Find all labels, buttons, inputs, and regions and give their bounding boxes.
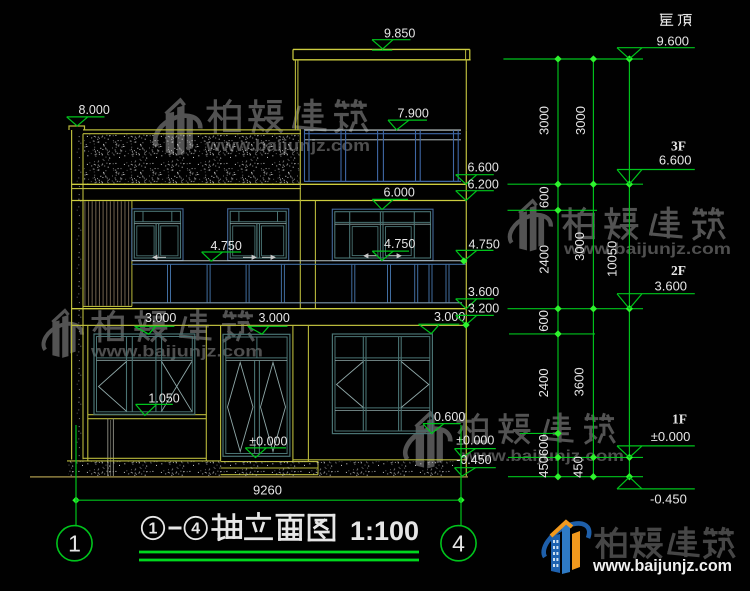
svg-text:4.750: 4.750	[211, 239, 242, 253]
svg-text:6.000: 6.000	[384, 186, 415, 200]
svg-text:4: 4	[191, 521, 200, 538]
svg-text:1:100: 1:100	[350, 516, 419, 546]
svg-text:8.000: 8.000	[79, 103, 110, 117]
svg-text:2F: 2F	[671, 263, 686, 278]
svg-text:1.050: 1.050	[148, 391, 179, 405]
svg-text:1: 1	[149, 521, 158, 538]
svg-text:4: 4	[452, 531, 465, 557]
svg-text:3.000: 3.000	[259, 311, 290, 325]
svg-text:600: 600	[537, 186, 552, 208]
svg-text:3000: 3000	[572, 232, 587, 261]
svg-text:3.000: 3.000	[434, 310, 465, 324]
svg-text:4.750: 4.750	[384, 237, 415, 251]
svg-text:9260: 9260	[253, 483, 282, 498]
svg-text:4.750: 4.750	[469, 238, 500, 252]
svg-text:10050: 10050	[604, 241, 619, 277]
svg-text:1: 1	[68, 531, 81, 557]
svg-text:9.600: 9.600	[657, 34, 690, 49]
svg-text:3000: 3000	[573, 106, 588, 135]
svg-text:6.600: 6.600	[659, 152, 692, 167]
svg-text:6.600: 6.600	[468, 161, 499, 175]
svg-text:1F: 1F	[672, 412, 687, 427]
svg-text:6.200: 6.200	[468, 178, 499, 192]
svg-text:9.850: 9.850	[384, 27, 415, 41]
svg-text:600: 600	[536, 310, 551, 332]
svg-text:3000: 3000	[537, 106, 552, 135]
svg-text:2400: 2400	[537, 245, 552, 274]
svg-text:0.600: 0.600	[434, 410, 465, 424]
svg-text:600: 600	[536, 434, 551, 456]
svg-text:±0.000: ±0.000	[456, 434, 494, 448]
svg-text:3.000: 3.000	[145, 311, 176, 325]
svg-text:450: 450	[536, 456, 551, 478]
svg-text:3.200: 3.200	[468, 302, 499, 316]
svg-text:±0.000: ±0.000	[651, 429, 691, 444]
svg-text:3.600: 3.600	[468, 285, 499, 299]
svg-text:2400: 2400	[536, 368, 551, 397]
svg-text:3.600: 3.600	[655, 279, 688, 294]
svg-text:3F: 3F	[671, 139, 686, 154]
svg-text:±0.000: ±0.000	[249, 434, 287, 448]
svg-text:-0.450: -0.450	[650, 492, 687, 507]
svg-text:3600: 3600	[572, 367, 587, 396]
svg-text:www.baijunjz.com: www.baijunjz.com	[592, 557, 732, 575]
svg-text:450: 450	[571, 456, 586, 478]
svg-text:7.900: 7.900	[398, 107, 429, 121]
svg-text:www.baijunjz.com: www.baijunjz.com	[563, 241, 731, 258]
